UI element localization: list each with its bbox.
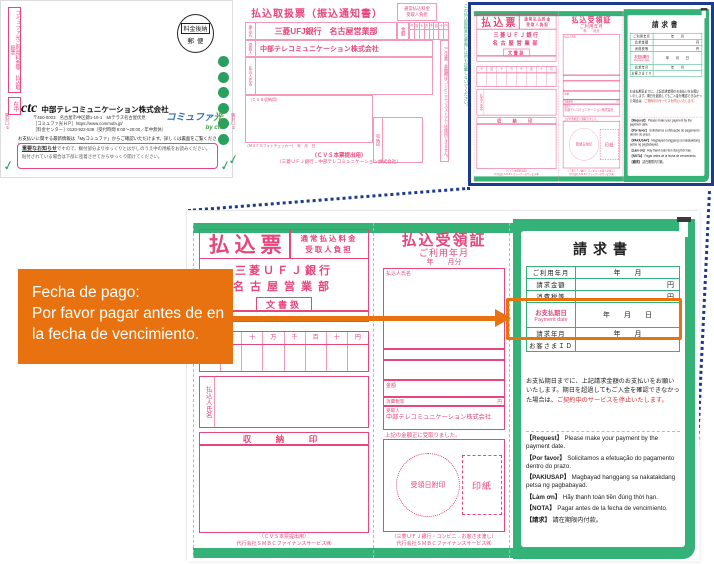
receipt-row-empty [563, 81, 620, 91]
postmark-top: 料金後納 [181, 23, 209, 34]
payment-date-highlight [506, 298, 682, 340]
col1-footer-1: （ＣＶＳ本票提出用） [199, 534, 369, 540]
amount-digit-cells [477, 73, 557, 87]
receipt-row-hidden [383, 349, 505, 360]
back-note-vertical: この払込取扱票の裏面には何も記載しないでください。 [460, 4, 468, 114]
open-mark-left: 開封口① [1, 113, 9, 130]
open-mark-right: 開封口② [227, 113, 235, 130]
digit-cell [477, 73, 487, 86]
received-note: 上記の金額正に受取りました。 [383, 431, 505, 439]
note-text: Hãy thanh toán tiền đúng thời hạn. [647, 149, 692, 153]
payer-name-field [484, 89, 556, 114]
digit-cell [527, 73, 537, 86]
receipt-year-month: 年 月分 [560, 28, 623, 33]
digit-cell [242, 345, 263, 371]
note-tag: 【PAKIUSAP】 [630, 139, 651, 143]
payment-slip-title: 払込票 [477, 14, 520, 29]
bank-name-line2: 名古屋営業部 [477, 39, 556, 47]
digit-header: 円 [444, 23, 448, 30]
digit-cell [517, 73, 527, 86]
note-text: Pagar antes de la fecha de vencimiento. [557, 505, 667, 512]
receipt-stamp-box [477, 124, 557, 169]
multilingual-note: 【請求】 請在期限内付款。 [526, 517, 680, 525]
transfer-footer-2: （三菱ＵＦＪ銀行→中部テレコミュニケーション株式会社） [245, 159, 433, 165]
mini-slip: 払込票 通常払込料金 受取人負担 三菱ＵＦＪ銀行 名古屋営業部 文書扱 千 百 … [468, 2, 714, 186]
multilingual-note: 【Por favor】 Solicitamos a efetuação do p… [526, 455, 680, 471]
note-tag: 【請求】 [630, 161, 642, 165]
payer-name-label: 払込人氏名 [477, 89, 484, 114]
important-notice-title: 重要なお知らせ [22, 146, 57, 152]
digit-header: 十 [439, 23, 443, 30]
callout-line3: la fecha de vencimiento. [32, 325, 233, 346]
digit-header: 万 [425, 23, 429, 30]
digit-cell [537, 73, 547, 86]
commufa-logo: コミュファ光 by ctc [161, 107, 223, 131]
receipt-stamp-header: 収 納 印 [199, 432, 369, 445]
digit-cell [546, 73, 555, 86]
important-notice-text: ですので、糊付部分よりゆっくりとはがしのうえ中の用紙をお読みください。 [57, 146, 210, 151]
bank-row: 振込先 三菱UFJ銀行 名古屋営業部 [245, 22, 397, 40]
connector-line-left [188, 187, 470, 212]
invoice-note-warning: ご契約中のサービスを停止いたします。 [557, 397, 668, 404]
customer-number-row [477, 56, 557, 62]
digit-header: 千 [430, 23, 434, 30]
payer-name-field [215, 377, 368, 427]
payment-date-label-en: Payment date [634, 59, 650, 62]
fee-note-box: 通常払込料金 受取人負担 [397, 3, 437, 21]
ocr-line: （ＭＵＦＧフォトチェッカー） 年 月 日 [245, 144, 373, 149]
page: コミュファ光ご利用料金等 払込取扱票 在中 料金後納 郵便 ctc 中部テレコミ… [0, 0, 714, 564]
perforation-line [373, 223, 374, 558]
dashed-divider [630, 117, 702, 118]
invoice-row: お客さまＩＤ [630, 70, 702, 77]
invoice-note-warning: ご契約中のサービスを停止いたします。 [644, 99, 696, 103]
payee-row-label: 受取人 [246, 41, 256, 56]
transfer-footer-1: （ＣＶＳ本票提出用） [245, 151, 433, 159]
note-text: 請在期限内付款。 [552, 517, 602, 524]
bank-name-line1: 三菱ＵＦＪ銀行 [477, 31, 556, 39]
digit-header: 万 [263, 332, 284, 344]
bank-row-label: 振込先 [246, 23, 256, 39]
postmark-bottom: 郵便 [185, 35, 207, 45]
bank-name: 三菱UFJ銀行 名古屋営業部 [256, 23, 396, 39]
dashed-divider [526, 431, 680, 432]
digit-cell [487, 73, 497, 86]
green-dots [218, 56, 229, 145]
document-handling-tag: 文書扱 [256, 297, 312, 312]
multilingual-notes: 【Request】 Please make your payment by th… [526, 435, 680, 529]
invoice-table: ご利用年月 年 月 請求金額 円 消費税等 円 お支払期日 Pa [630, 33, 702, 76]
callout-line1: Fecha de pago: [32, 283, 233, 304]
invoice-row-label: お客さまＩＤ [526, 339, 576, 352]
col1-footer-2: 代行会社ＳＭＢＣファイナンスサービス㈱ [477, 173, 557, 176]
green-dot-icon [218, 72, 229, 83]
multilingual-notes: 【Request】 Please make your payment by th… [630, 119, 702, 167]
receipt-amount-box: 金額 [563, 91, 620, 100]
digit-cell [263, 345, 284, 371]
note-tag: 【請求】 [526, 517, 551, 524]
multilingual-note: 【NOTA】 Pagar antes de la fecha de vencim… [526, 505, 680, 513]
revenue-stamp-label: 印紙 [605, 141, 614, 148]
digit-header: 百 [306, 332, 327, 344]
note-tag: 【Làm ơn】 [526, 494, 561, 501]
col1-footer-2: 代行会社ＳＭＢＣファイナンスサービス㈱ [199, 541, 369, 547]
date-stamp-label: 受領日附印 [411, 480, 446, 490]
sender-company: 中部テレコミュニケーション株式会社 [41, 104, 168, 115]
fee-line2: 受取人負担 [301, 244, 358, 255]
receipt-stamp-box [199, 445, 369, 533]
multilingual-note: 【請求】 請在期限内付款。 [630, 161, 702, 165]
digit-header: 十 [420, 23, 424, 30]
digit-header: 円 [348, 332, 368, 344]
fee-note-box: 通常払込料金 受取人負担 [519, 14, 557, 29]
receipt-amount-label: 金額 [386, 383, 396, 389]
fee-line2: 受取人負担 [404, 12, 430, 18]
callout-line2: Por favor pagar antes de en [32, 304, 233, 325]
note-tag: 【Làm ơn】 [630, 149, 646, 153]
receipt-amount-box: 金額 [383, 380, 505, 397]
receipt-stamp-area: 受領日附印 印紙 [383, 439, 505, 532]
digit-cell [306, 345, 327, 371]
invoice-row-value [575, 339, 680, 352]
green-bar-bottom [474, 176, 624, 181]
invoice-row-value [653, 70, 702, 77]
fee-line2: 受取人負担 [524, 22, 551, 28]
date-stamp-label: 受領日附印 [576, 142, 592, 147]
revenue-stamp-box-icon: 印紙 [600, 129, 619, 160]
receipt-tax-label: 消費税等 [564, 100, 573, 103]
caution-vertical-note: （ご注意）金額欄はコンビニエンスストアでは使用できません。 [440, 40, 449, 162]
digit-header: 十 [327, 332, 348, 344]
receipt-recipient-box: 受取人 中部テレコミュニケーション株式会社 [563, 104, 620, 116]
receipt-yen-label: 円 [617, 100, 619, 103]
invoice-row-label: お客さまＩＤ [630, 70, 653, 77]
payer-field [256, 58, 432, 94]
payee-row: 受取人 中部テレコミュニケーション株式会社 [245, 40, 433, 57]
multilingual-note: 【NOTA】 Pagar antes de la fecha de vencim… [630, 155, 702, 159]
note-text: 請在期限内付款。 [642, 161, 665, 165]
receipt-amount-label: 金額 [564, 92, 569, 95]
large-slip-content: 払込票 通常払込料金 受取人負担 三菱ＵＦＪ銀行 名古屋営業部 文書扱 千 百 … [187, 211, 699, 561]
receipt-yen-label: 円 [497, 399, 502, 405]
note-text: Hãy thanh toán tiền đúng thời hạn. [563, 494, 658, 501]
mini-slip-scale: 払込票 通常払込料金 受取人負担 三菱ＵＦＪ銀行 名古屋営業部 文書扱 千 百 … [471, 5, 711, 183]
invoice-row-label: お支払期日 Payment date [630, 51, 653, 64]
receipt-stamp-area: 受領日附印 印紙 [563, 121, 620, 168]
postmark-stamp-icon: 料金後納 郵便 [177, 14, 214, 53]
callout-arrow-head-icon [495, 309, 511, 327]
digit-cell [348, 345, 368, 371]
bank-box: 三菱ＵＦＪ銀行 名古屋営業部 文書扱 [477, 29, 557, 56]
multilingual-note: 【Làm ơn】 Hãy thanh toán tiền đúng thời h… [526, 494, 680, 502]
amount-grid: 千 百 十 万 千 百 十 円 [409, 22, 449, 40]
transfer-slip-title: 払込取扱票（振込通知書） [251, 5, 401, 20]
important-notice-text2: 貼付されている場合は下部に密着させてからゆっくり開けてください。 [22, 154, 162, 159]
receipt-tax-label: 消費税等 [386, 399, 404, 405]
invoice-card: 請求書 ご利用年月 年 月 請求金額 円 消費税等 円 [521, 231, 685, 547]
digit-header: 百 [434, 23, 438, 30]
receipt-payer-box: 払込人氏名 [563, 34, 620, 75]
receipt-payer-label: 払込人氏名 [386, 271, 411, 277]
digit-header: 百 [415, 23, 419, 30]
receipt-payer-label: 払込人氏名 [564, 36, 576, 39]
digit-cell [497, 73, 507, 86]
note-tag: 【Por favor】 [526, 455, 566, 462]
receipt-row-empty [383, 360, 505, 380]
invoice-row-value: 年 月 日 [653, 51, 702, 64]
large-slip-content: 払込票 通常払込料金 受取人負担 三菱ＵＦＪ銀行 名古屋営業部 文書扱 千 百 … [471, 5, 711, 183]
commufa-logo-text: コミュファ [166, 112, 214, 123]
payment-slip-title: 払込票 [199, 229, 291, 259]
green-check-icon: ✓ [1, 157, 15, 175]
invoice-title: 請求書 [628, 19, 705, 29]
digit-header: 千 [410, 23, 414, 30]
multilingual-note: 【Làm ơn】 Hãy thanh toán tiền đúng thời h… [630, 149, 702, 153]
note-tag: 【Por favor】 [630, 129, 649, 133]
invoice-row: お客さまＩＤ [526, 339, 680, 352]
digit-cell [327, 345, 348, 371]
fee-line1: 通常払込料金 [301, 233, 358, 244]
invoice-note: お支払期日までに、上記請求金額のお支払いをお願いいたします。期日を超過してもご入… [526, 377, 680, 405]
receipt-recipient-box: 受取人 中部テレコミュニケーション株式会社 [383, 406, 505, 430]
callout-arrow [230, 316, 496, 321]
note-tag: 【NOTA】 [630, 155, 644, 159]
multilingual-note: 【PAKIUSAP】 Magbayad hanggang sa nakatakd… [630, 139, 702, 147]
green-dot-icon [218, 56, 229, 67]
note-tag: 【NOTA】 [526, 505, 555, 512]
note-text: Pagar antes de la fecha de vencimiento. [645, 155, 697, 159]
recipient-name: 中部テレコミュニケーション株式会社 [386, 414, 502, 421]
receipt-year-month: 年 月分 [377, 257, 511, 267]
green-dot-icon [218, 87, 229, 98]
green-bar-bottom [193, 548, 513, 558]
note-tag: 【Request】 [630, 119, 647, 123]
envelope-side-label: コミュファ光ご利用料金等 払込取扱票 [8, 7, 21, 93]
revenue-stamp-box-icon: 印紙 [462, 455, 502, 515]
fee-note-box: 通常払込料金 受取人負担 [289, 229, 369, 259]
digit-cell [285, 345, 306, 371]
amount-grid-cell: 円 [444, 23, 448, 39]
invoice-note: お支払期日までに、上記請求金額のお支払いをお願いいたします。期日を超過してもご入… [630, 89, 702, 103]
col2-footer-2: 代行会社ＳＭＢＣファイナンスサービス㈱ [377, 541, 511, 547]
large-slip: 払込票 通常払込料金 受取人負担 三菱ＵＦＪ銀行 名古屋営業部 文書扱 千 百 … [186, 210, 698, 560]
payer-name-box: 払込人氏名 [199, 376, 369, 428]
invoice-title: 請求書 [521, 239, 685, 259]
note-tag: 【PAKIUSAP】 [526, 474, 570, 481]
invoice-card: 請求書 ご利用年月 年 月 請求金額 円 消費税等 円 [628, 15, 705, 176]
revenue-stamp-label: 印紙 [472, 479, 492, 492]
digit-header: 十 [242, 332, 263, 344]
multilingual-note: 【Request】 Please make your payment by th… [526, 435, 680, 451]
payer-row-label: 払込人氏名 [246, 58, 256, 94]
col2-footer-1: （三菱ＵＦＪ銀行・コンビニ→お客さま渡し） [377, 534, 511, 540]
important-notice-box: 重要なお知らせですので、糊付部分よりゆっくりとはがしのうえ中の用紙をお読みくださ… [17, 143, 218, 169]
digit-cell [507, 73, 517, 86]
payer-name-label: 払込人氏名 [200, 377, 215, 427]
digit-header: 千 [285, 332, 306, 344]
green-dot-icon [218, 134, 229, 145]
commufa-logo-hikari: 光 [213, 112, 223, 123]
cvs-box: （ＣＶＳ収納用） [245, 95, 373, 143]
date-stamp-circle-icon: 受領日附印 [569, 128, 599, 161]
envelope: コミュファ光ご利用料金等 払込取扱票 在中 料金後納 郵便 ctc 中部テレコミ… [0, 0, 233, 178]
recipient-name: 中部テレコミュニケーション株式会社 [564, 108, 618, 112]
receipt-tax-row: 消費税等 円 [383, 397, 505, 406]
commufa-logo-by: by ctc [161, 125, 223, 131]
perforation-line [509, 223, 510, 558]
payee-name: 中部テレコミュニケーション株式会社 [256, 41, 432, 56]
payer-row: 払込人氏名 [245, 57, 433, 95]
amount-label: 金額 [397, 22, 409, 40]
payer-name-box: 払込人氏名 [477, 89, 557, 115]
payment-date-callout: Fecha de pago: Por favor pagar antes de … [18, 269, 233, 364]
note-tag: 【Request】 [526, 435, 563, 442]
cvs-box-label: （ＣＶＳ収納用） [248, 97, 280, 102]
multilingual-note: 【Request】 Please make your payment by th… [630, 119, 702, 127]
transfer-slip: 払込取扱票（振込通知書） 通常払込料金 受取人負担 振込先 三菱UFJ銀行 名古… [237, 0, 459, 170]
multilingual-note: 【PAKIUSAP】 Magbayad hanggang sa nakatakd… [526, 474, 680, 490]
invoice-row-payment-date: お支払期日 Payment date 年 月 日 [630, 51, 702, 64]
receipt-payer-box: 払込人氏名 [383, 268, 505, 349]
multilingual-note: 【Por favor】 Solicitamos a efetuação do p… [630, 129, 702, 137]
date-stamp-circle-icon: 受領日附印 [396, 453, 460, 517]
col2-footer-2: 代行会社ＳＭＢＣファイナンスサービス㈱ [560, 173, 623, 176]
